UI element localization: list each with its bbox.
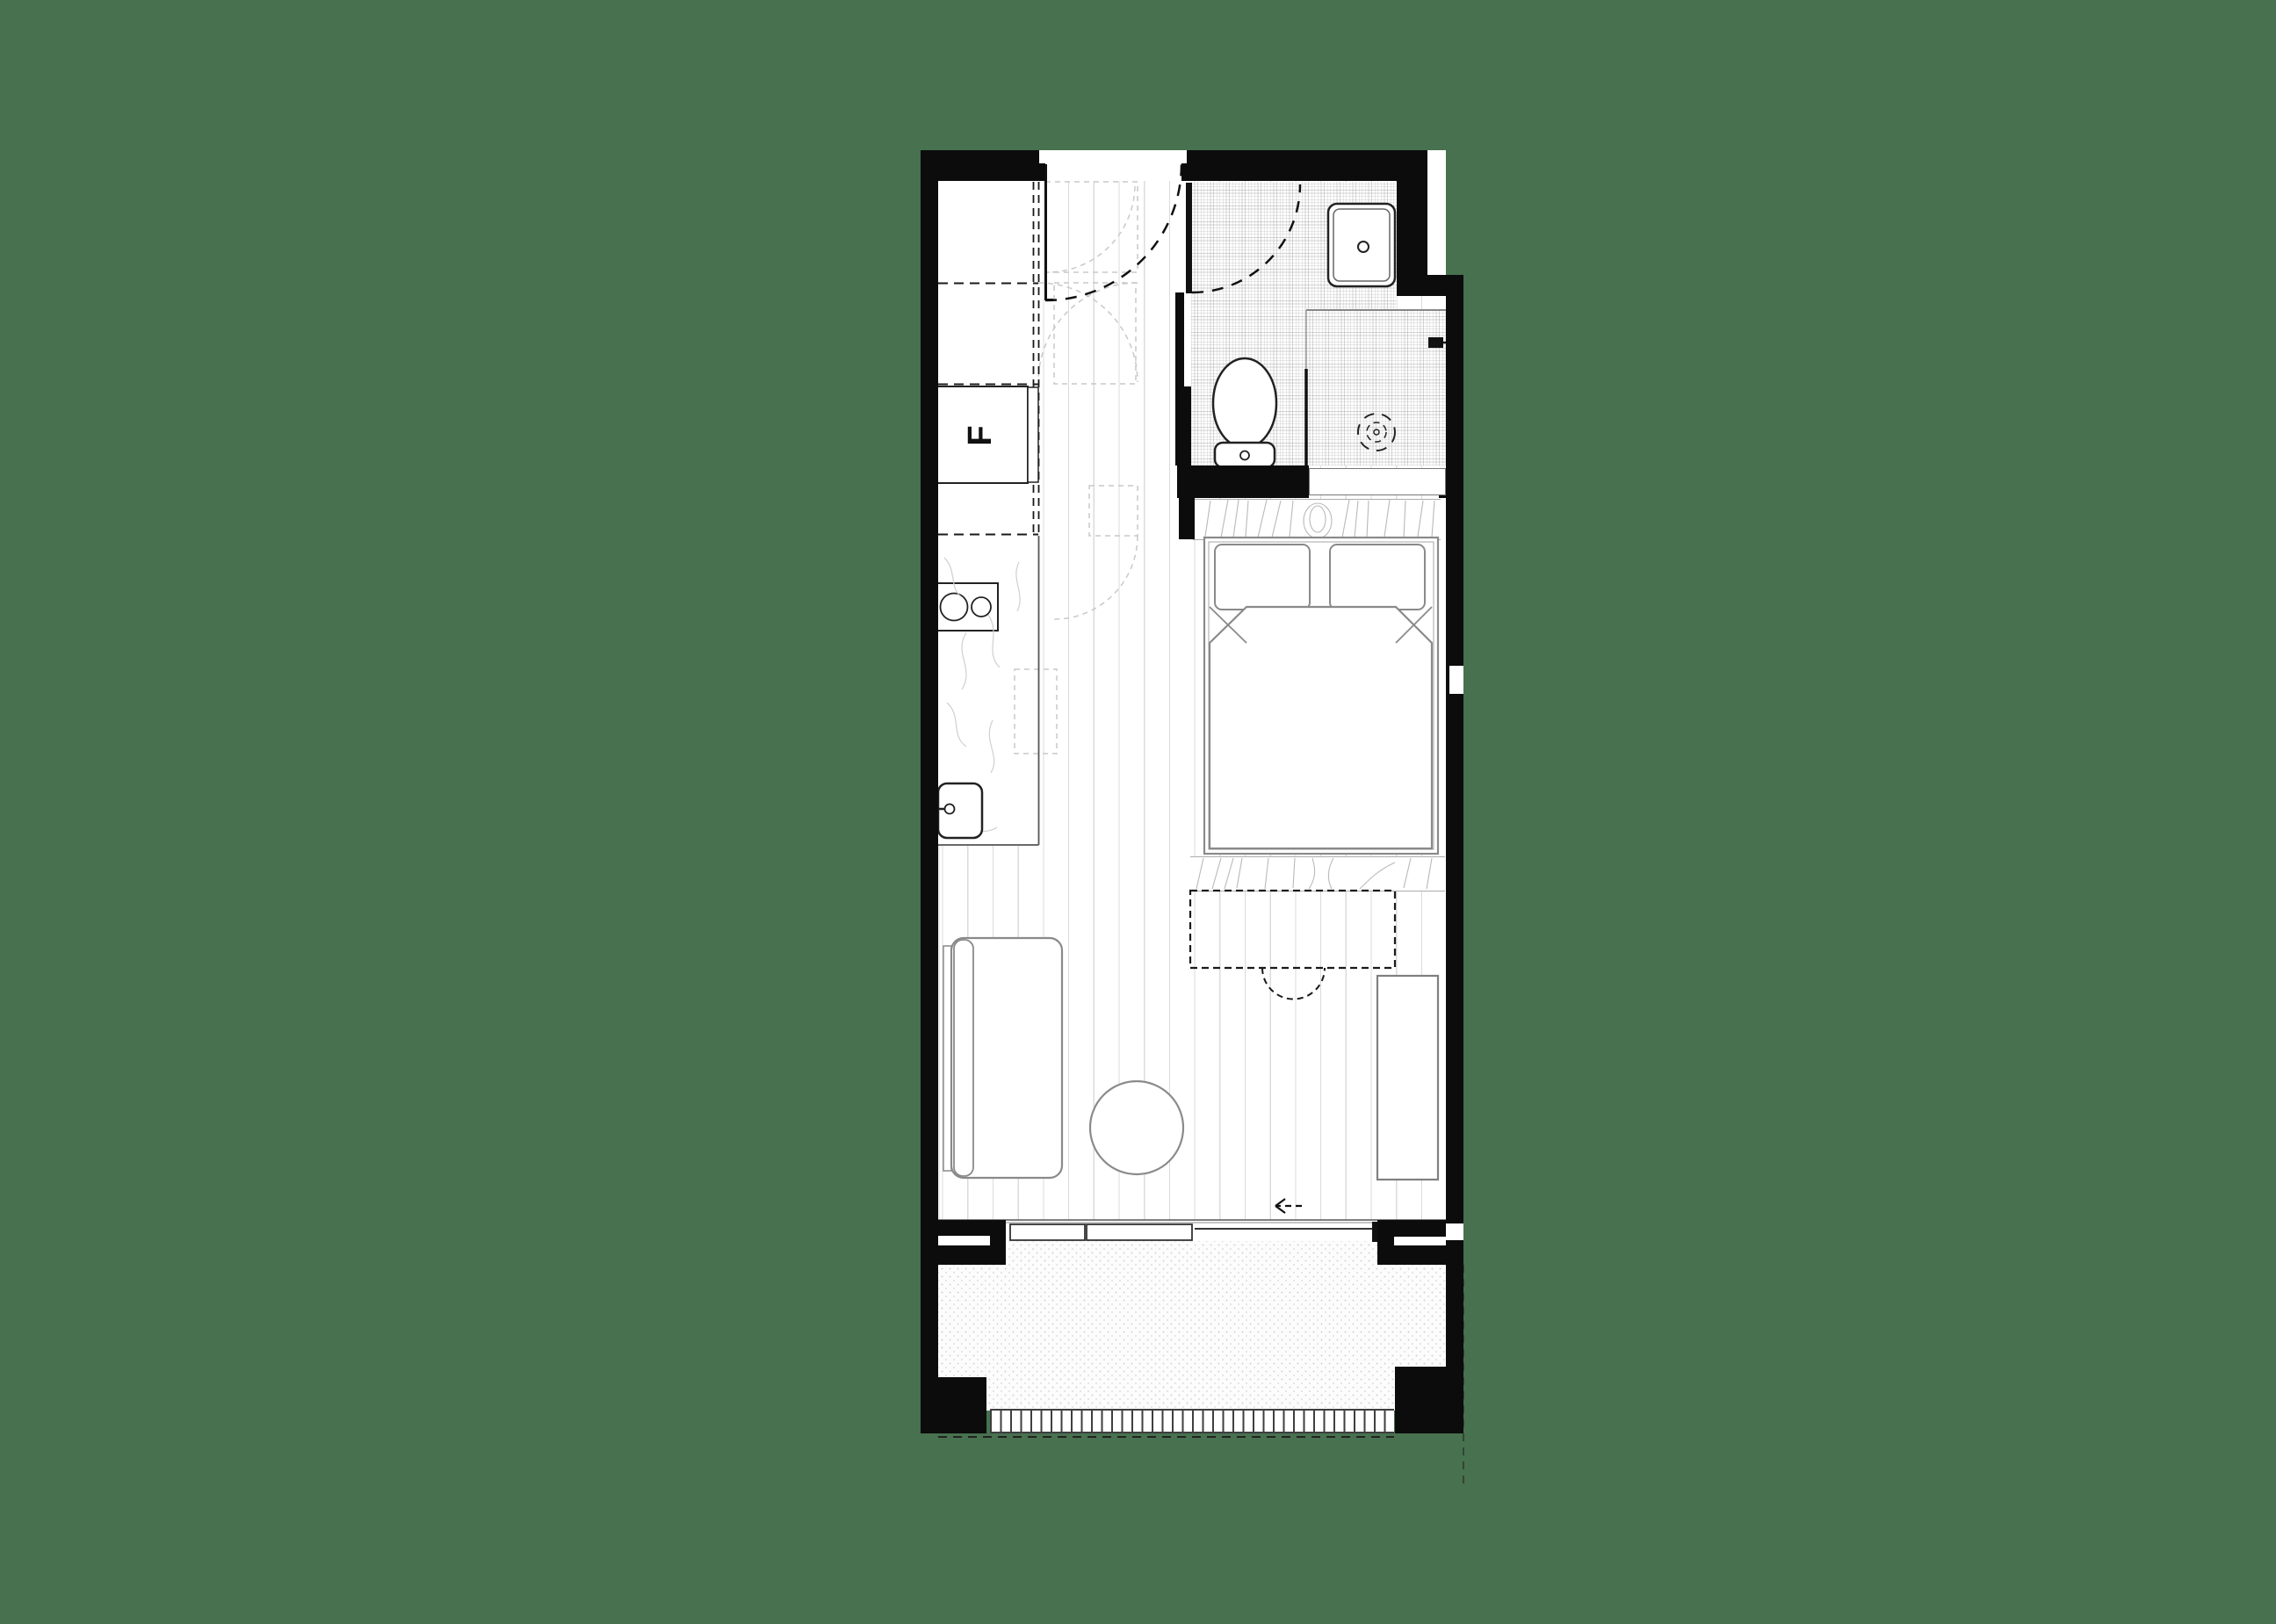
wall-top-left xyxy=(921,150,1039,181)
wardrobe-joinery xyxy=(1193,499,1441,540)
fridge-label: F xyxy=(947,402,1014,469)
wall-top-right xyxy=(1187,150,1427,181)
shower-floor xyxy=(1306,310,1446,466)
wall-bath-corridor xyxy=(1175,386,1191,466)
bedfoot-joinery xyxy=(1190,856,1445,891)
wall-left xyxy=(921,150,938,1433)
wall-bath-bottom xyxy=(1177,466,1309,498)
shower-curb xyxy=(1309,468,1446,495)
wall-stub-bedhead xyxy=(1179,498,1195,539)
wall-right-gap xyxy=(1446,1223,1463,1240)
pier-upper-left-slot xyxy=(938,1236,990,1245)
floor-plan-canvas: F xyxy=(0,0,2276,1624)
entry-jamb-left xyxy=(1039,163,1045,181)
kitchen-joinery xyxy=(938,181,1039,845)
pier-lower-left xyxy=(921,1377,986,1433)
wall-bathroom-right xyxy=(1397,150,1427,290)
wall-right-joint xyxy=(1449,666,1463,694)
pier-lower-right xyxy=(1395,1367,1463,1433)
entry-jamb-right xyxy=(1181,163,1187,181)
drainage-grate xyxy=(990,1409,1394,1433)
pier-upper-right-slot xyxy=(1394,1237,1446,1245)
wall-right xyxy=(1446,278,1463,1367)
balcony-paving xyxy=(938,1241,1446,1411)
wall-bath-nib xyxy=(1175,292,1184,386)
